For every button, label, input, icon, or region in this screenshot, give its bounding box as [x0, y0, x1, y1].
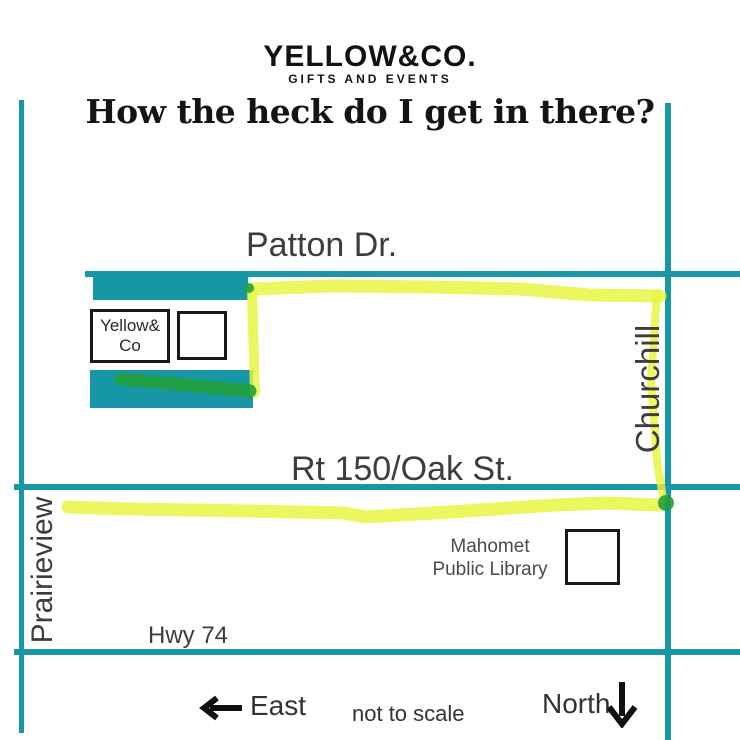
road-hwy74-line — [14, 649, 740, 655]
library-label-line1: Mahomet — [425, 536, 555, 559]
scale-note: not to scale — [352, 701, 465, 727]
library-label: Mahomet Public Library — [425, 536, 555, 582]
store-building-label-line2: Co — [119, 336, 141, 356]
store-parking-strip-front — [93, 277, 248, 300]
road-label-churchill: Churchill — [629, 325, 667, 453]
route-rt150-highlight — [68, 503, 658, 517]
neighbor-unit-box — [177, 311, 227, 360]
north-arrow-icon — [604, 680, 640, 728]
road-label-rt150: Rt 150/Oak St. — [291, 450, 514, 489]
east-arrow-icon — [197, 695, 243, 721]
east-label: East — [250, 690, 306, 722]
store-parking-strip-back — [90, 370, 253, 408]
library-label-line2: Public Library — [425, 559, 555, 582]
road-prairieview-line — [19, 100, 24, 733]
store-building-box: Yellow& Co — [90, 309, 170, 363]
north-label: North — [542, 688, 610, 720]
route-patton-highlight — [253, 286, 660, 296]
store-building-label-line1: Yellow& — [100, 316, 160, 336]
road-label-patton: Patton Dr. — [246, 226, 397, 265]
road-label-prairieview: Prairieview — [26, 497, 60, 644]
direction-map-flyer: YELLOW&CO. GIFTS AND EVENTS How the heck… — [0, 0, 740, 740]
road-label-hwy74: Hwy 74 — [148, 622, 228, 650]
brand-tagline: GIFTS AND EVENTS — [0, 72, 740, 86]
page-title: How the heck do I get in there? — [0, 92, 740, 131]
library-building-box — [565, 529, 620, 585]
brand-logo: YELLOW&CO. — [0, 40, 740, 74]
